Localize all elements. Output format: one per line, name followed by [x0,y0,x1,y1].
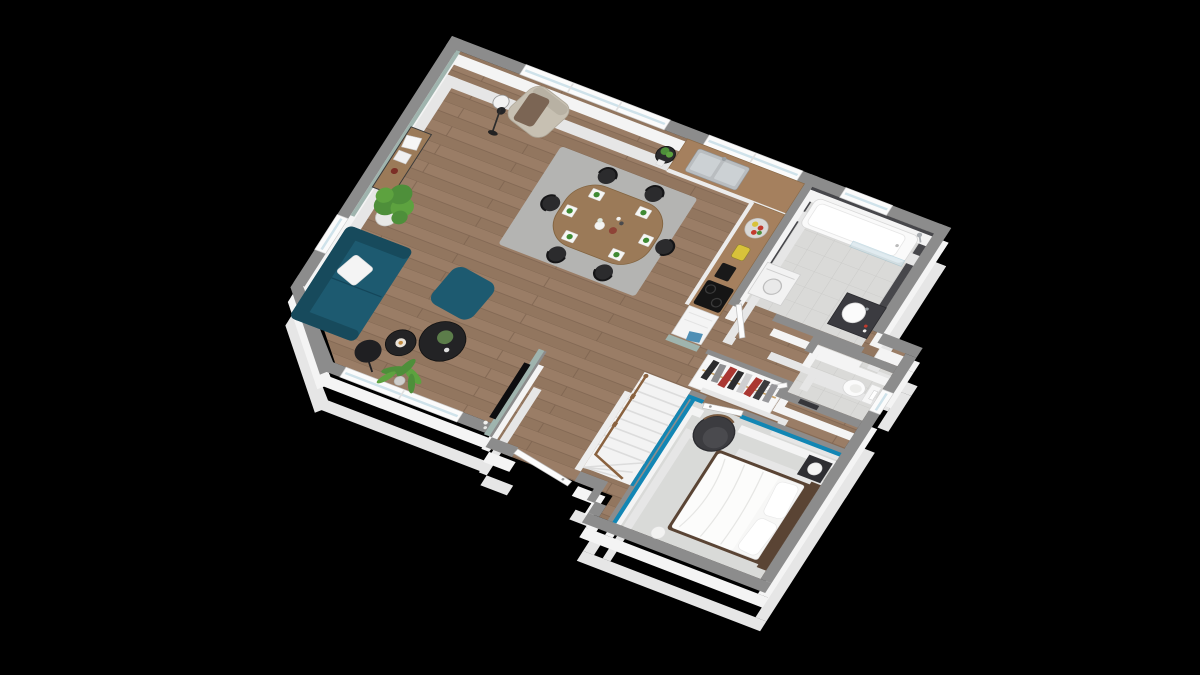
floor-plan-render [0,0,1200,675]
